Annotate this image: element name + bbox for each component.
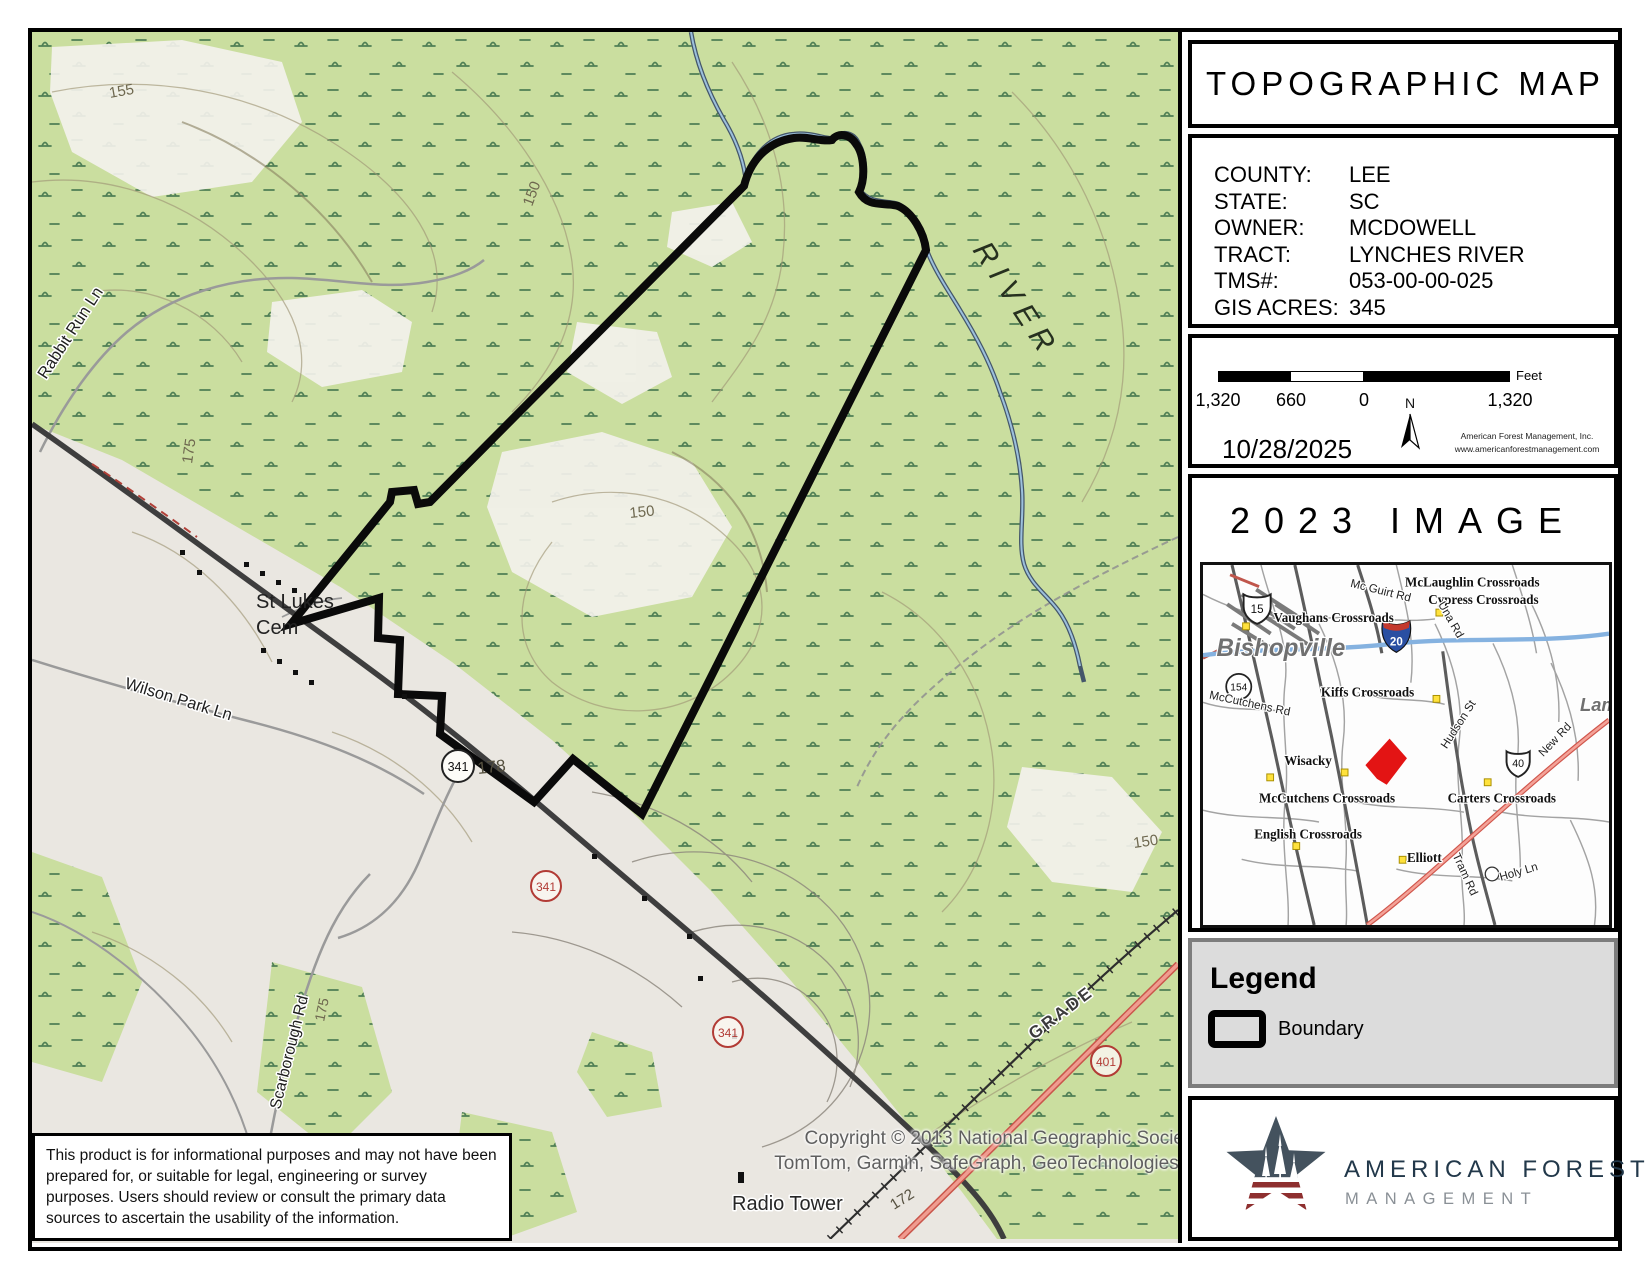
radio-tower-label: Radio Tower [732,1193,843,1215]
elevation-150-b: 150 [629,502,656,522]
svg-text:341: 341 [448,760,469,774]
logo-company-name: AMERICAN FOREST [1344,1156,1650,1184]
logo-company-sub: MANAGEMENT [1345,1190,1538,1209]
route-shield-341-red-a: 341 [531,871,561,901]
route-shield-341-red-b: 341 [713,1017,743,1047]
title-box: TOPOGRAPHIC MAP [1188,40,1618,128]
topographic-map-page: 341 341 341 401 Rabbit Run Ln Wilson Par… [0,0,1650,1275]
st-lukes-cem-label-2: Cem [256,617,298,639]
topo-map-canvas: 341 341 341 401 Rabbit Run Ln Wilson Par… [32,32,1178,1239]
boundary-symbol-icon [1208,1010,1266,1048]
english-crossroads-label: English Crossroads [1254,827,1362,842]
svg-text:401: 401 [1096,1055,1116,1069]
carters-crossroads-label: Carters Crossroads [1448,790,1556,805]
kiffs-crossroads-label: Kiffs Crossroads [1321,684,1414,699]
elliott-label: Elliott [1407,850,1442,865]
county-label: COUNTY: [1214,162,1349,189]
afm-star-logo-icon [1214,1106,1338,1238]
svg-text:341: 341 [718,1026,738,1040]
info-row-tms: TMS#: 053-00-00-025 [1214,268,1614,295]
svg-text:N: N [1405,395,1415,411]
image-year-header: 2023 IMAGE [1192,500,1614,542]
scale-unit: Feet [1516,368,1542,383]
copyright-line-1: Copyright © 2013 National Geographic Soc… [805,1128,1182,1150]
bishopville-label: Bishopville [1217,635,1346,662]
info-row-tract: TRACT: LYNCHES RIVER [1214,242,1614,269]
tract-value: LYNCHES RIVER [1349,242,1525,269]
map-panel: 341 341 341 401 Rabbit Run Ln Wilson Par… [32,32,1182,1243]
map-date: 10/28/2025 [1222,434,1352,465]
radio-tower-symbol [738,1172,744,1183]
elevation-175-a: 175 [179,437,199,464]
north-arrow-icon: N [1390,394,1430,466]
info-row-county: COUNTY: LEE [1214,162,1614,189]
disclaimer-text: This product is for informational purpos… [32,1133,512,1241]
elevation-150-c: 150 [1132,832,1159,852]
st-lukes-cem-label-1: St Lukes [256,591,334,613]
acres-value: 345 [1349,295,1386,322]
county-value: LEE [1349,162,1391,189]
info-row-owner: OWNER: MCDOWELL [1214,215,1614,242]
scale-tick-mid: 660 [1276,390,1306,411]
state-value: SC [1349,189,1380,216]
legend-heading: Legend [1192,942,1614,996]
boundary-label: Boundary [1278,1018,1364,1041]
mclaughlin-crossroads-label: McLaughlin Crossroads [1405,574,1540,589]
svg-text:341: 341 [536,880,556,894]
wisacky-label: Wisacky [1284,753,1332,768]
info-row-acres: GIS ACRES: 345 [1214,295,1614,322]
tms-label: TMS#: [1214,268,1349,295]
svg-text:15: 15 [1251,603,1264,616]
logo-box: AMERICAN FOREST MANAGEMENT [1188,1096,1618,1241]
vaughans-crossroads-label: Vaughans Crossroads [1274,610,1394,625]
info-row-state: STATE: SC [1214,189,1614,216]
svg-text:40: 40 [1512,758,1524,770]
acres-label: GIS ACRES: [1214,295,1349,322]
company-credit: American Forest Management, Inc. www.ame… [1444,430,1610,456]
elevation-178: 178 [476,756,506,778]
route-shield-341-white: 341 [442,750,474,782]
scale-tick-zero: 0 [1359,390,1369,411]
page-title: TOPOGRAPHIC MAP [1192,65,1605,103]
lamar-label: Lamar [1580,694,1609,715]
property-info-box: COUNTY: LEE STATE: SC OWNER: MCDOWELL TR… [1188,134,1618,328]
scale-tick-right: 1,320 [1487,390,1532,411]
locator-inset-map: 15 154 20 40 McLaughlin Cr [1200,562,1612,928]
mccutchens-crossroads-label: McCutchens Crossroads [1259,790,1395,805]
company-url: www.americanforestmanagement.com [1444,443,1610,456]
tms-value: 053-00-00-025 [1349,268,1493,295]
copyright-line-2: TomTom, Garmin, SafeGraph, GeoTechnologi… [774,1153,1182,1175]
scale-box: Feet 1,320 660 0 1,320 10/28/2025 N Amer… [1188,334,1618,468]
svg-text:20: 20 [1390,635,1403,648]
scale-tick-left: 1,320 [1195,390,1240,411]
company-name: American Forest Management, Inc. [1444,430,1610,443]
legend-item-boundary: Boundary [1208,1010,1614,1048]
scale-bar [1218,371,1510,382]
svg-text:154: 154 [1230,683,1247,694]
route-shield-401-red: 401 [1091,1046,1121,1076]
location-image-box: 2023 IMAGE [1188,474,1618,932]
legend-box: Legend Boundary [1188,938,1618,1088]
holy-ln-circle [1485,867,1499,881]
tract-label: TRACT: [1214,242,1349,269]
owner-label: OWNER: [1214,215,1349,242]
state-label: STATE: [1214,189,1349,216]
owner-value: MCDOWELL [1349,215,1476,242]
